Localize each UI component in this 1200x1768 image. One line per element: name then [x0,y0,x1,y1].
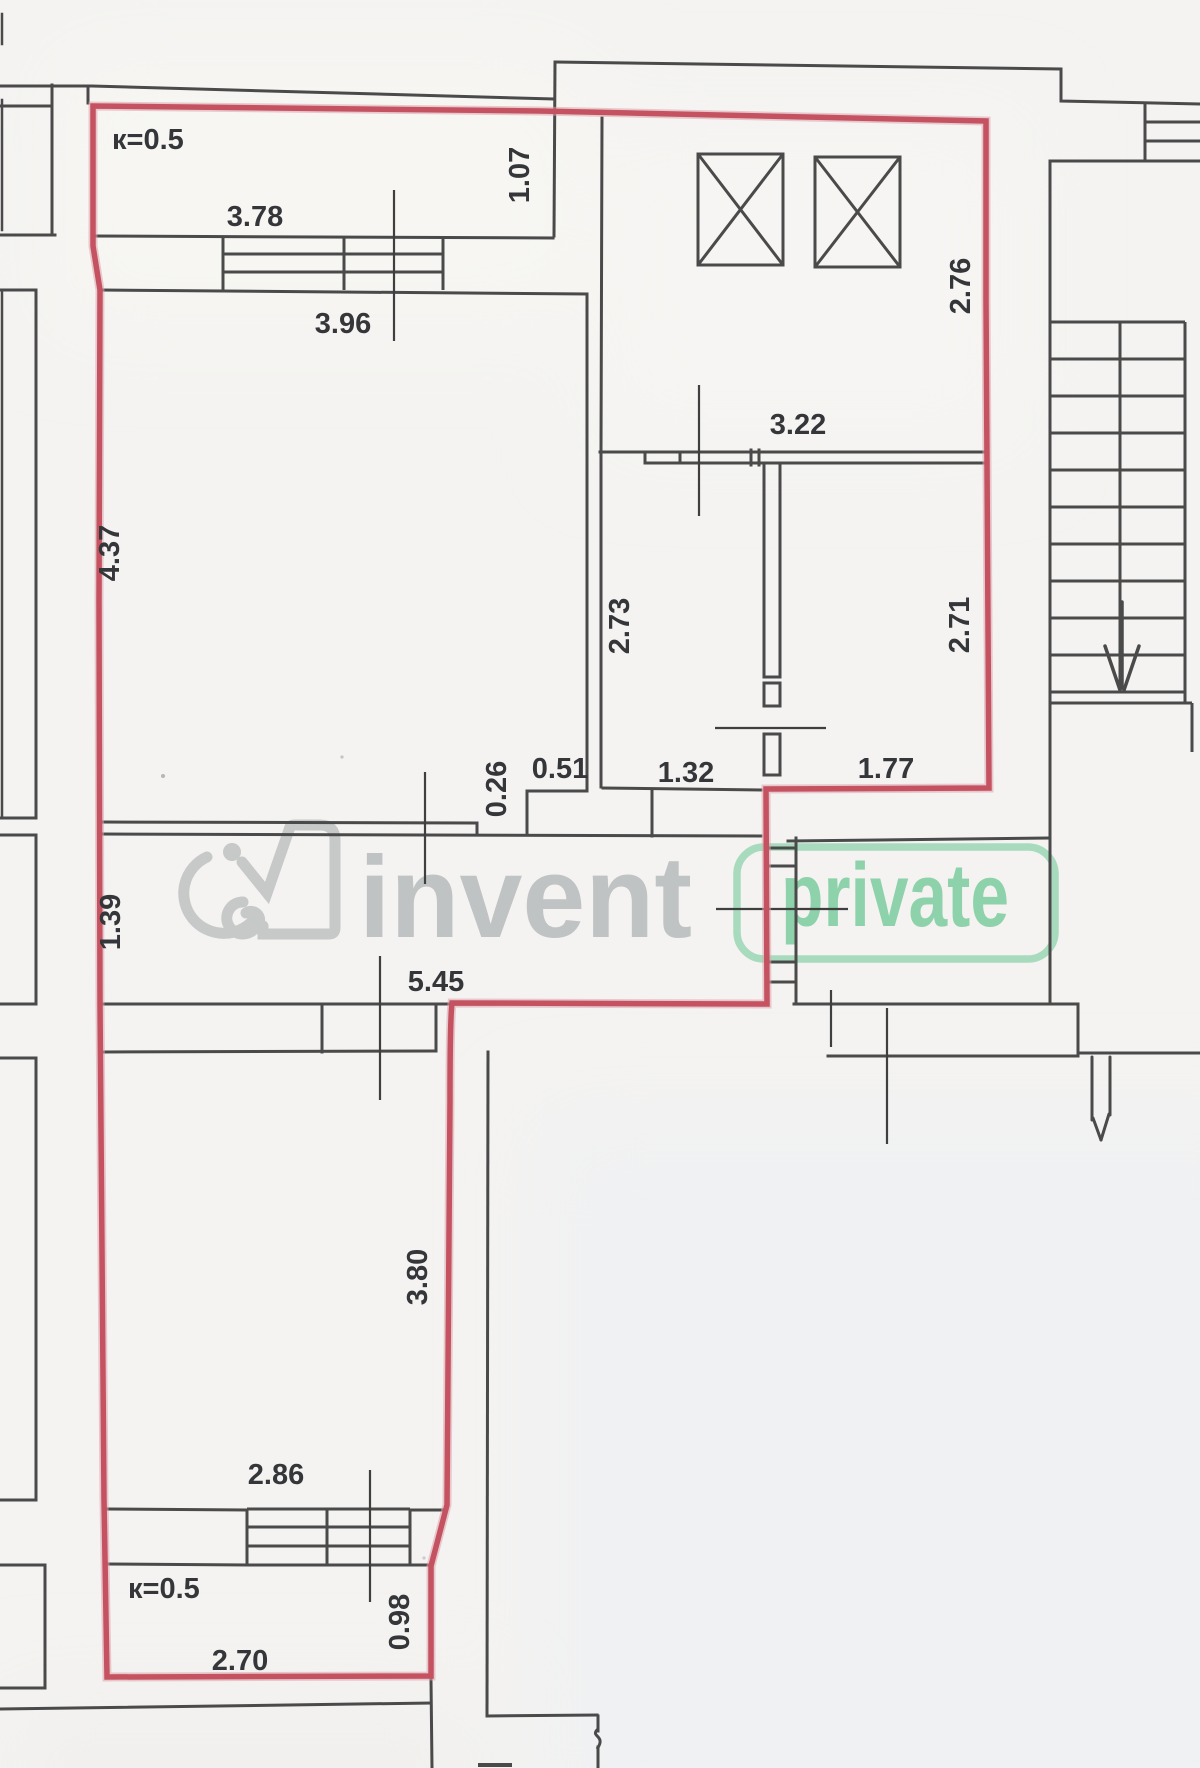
svg-text:2.76: 2.76 [945,258,977,314]
svg-text:0.98: 0.98 [384,1594,416,1650]
svg-text:4.37: 4.37 [94,525,126,581]
svg-text:5.45: 5.45 [408,966,464,998]
svg-text:0.51: 0.51 [532,753,588,785]
svg-text:3.78: 3.78 [227,201,283,233]
svg-text:1.07: 1.07 [504,147,536,203]
svg-text:2.86: 2.86 [248,1459,304,1491]
svg-text:3.22: 3.22 [770,409,826,441]
svg-text:3.96: 3.96 [315,308,371,340]
svg-text:2.70: 2.70 [212,1645,268,1677]
svg-text:1.39: 1.39 [95,894,127,950]
svg-text:private: private [781,846,1009,946]
svg-text:к=0.5: к=0.5 [128,1573,200,1605]
svg-text:2.71: 2.71 [944,597,976,653]
svg-text:0.26: 0.26 [481,761,513,817]
svg-text:к=0.5: к=0.5 [112,124,184,156]
svg-text:1.32: 1.32 [658,757,714,789]
svg-text:2.73: 2.73 [604,598,636,654]
svg-text:invent: invent [359,832,692,962]
svg-text:3.80: 3.80 [402,1249,434,1305]
svg-text:1.77: 1.77 [858,753,914,785]
